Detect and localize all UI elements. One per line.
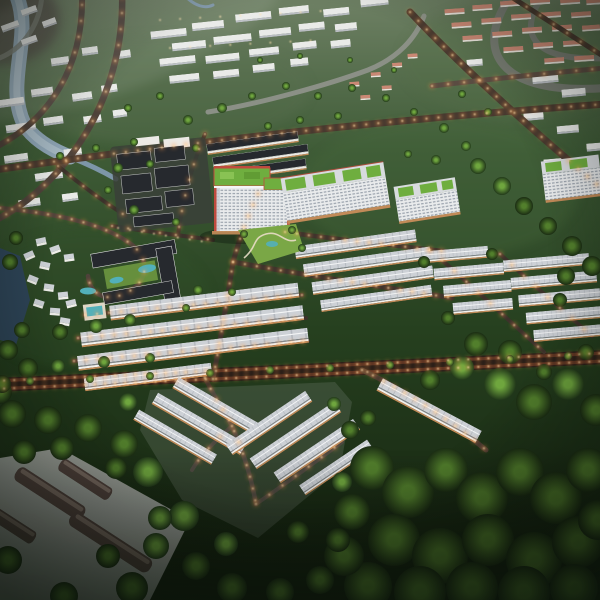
atmosphere [0, 0, 600, 600]
bottom-shade [0, 0, 600, 600]
township-aerial-render: Aerial dusk rendering of a master-planne… [0, 0, 600, 600]
aerial-render-viewport: Aerial dusk rendering of a master-planne… [0, 0, 600, 600]
